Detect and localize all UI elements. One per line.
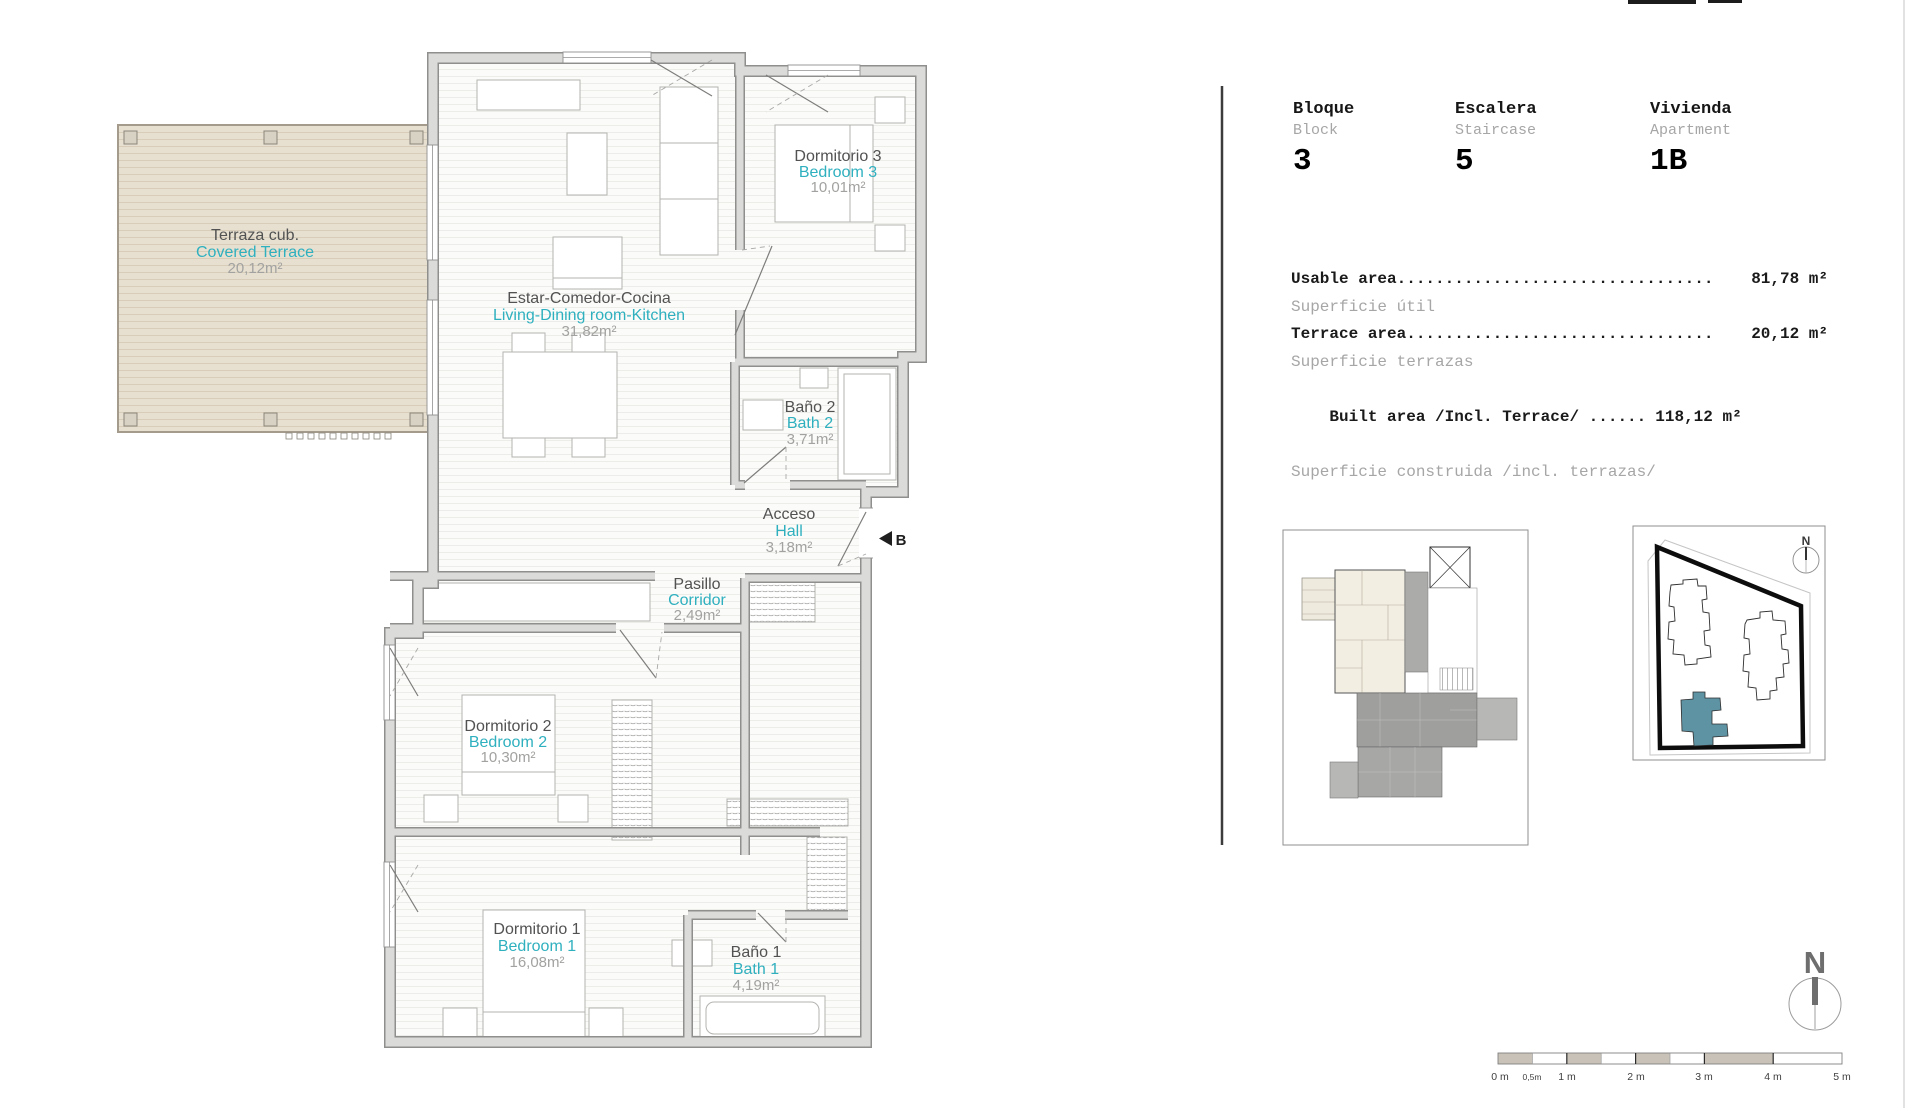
usable-area-label: Usable area.............................…: [1291, 266, 1713, 294]
room-name-es: Dormitorio 2: [464, 718, 551, 735]
room-area: 3,18m²: [766, 539, 813, 556]
terrace-area-label: Terrace area............................…: [1291, 321, 1713, 349]
block-label-es: Bloque: [1293, 100, 1354, 119]
closet-hall: [748, 582, 815, 622]
built-area-value: 118,12 m²: [1655, 408, 1741, 426]
room-name-es: Terraza cub.: [211, 227, 299, 244]
room-label-bath1: Baño 1 Bath 1 4,19m²: [731, 944, 782, 994]
scale-label-0: 0 m: [1491, 1071, 1509, 1083]
built-area-row: Built area /Incl. Terrace/ ......118,12 …: [1291, 376, 1828, 459]
scale-label-1: 1 m: [1558, 1071, 1576, 1083]
scale-label-3: 3 m: [1695, 1071, 1713, 1083]
room-area: 4,19m²: [733, 977, 780, 994]
scale-label-4: 4 m: [1764, 1071, 1782, 1083]
kitchen-island: [567, 133, 607, 195]
key-floor-map: [1283, 530, 1528, 845]
scale-label-05: 0,5m: [1523, 1072, 1542, 1082]
key-elevator: [1430, 547, 1470, 588]
apartment-value: 1B: [1650, 144, 1732, 179]
staircase-info: Escalera Staircase 5: [1455, 100, 1537, 179]
room-area: 31,82m²: [561, 323, 616, 340]
room-name-es: Baño 1: [731, 944, 782, 961]
room-name-en: Bedroom 1: [498, 938, 576, 955]
site-building-1: [1668, 579, 1711, 665]
armchair: [553, 237, 622, 289]
scale-label-5: 5 m: [1833, 1071, 1851, 1083]
room-area: 16,08m²: [509, 954, 564, 971]
entrance-opening: [859, 508, 873, 558]
site-north-letter: N: [1802, 534, 1811, 548]
key-neighbor-terrace-1: [1477, 698, 1517, 740]
usable-area-value: 81,78 m²: [1751, 266, 1828, 294]
usable-area-label-es: Superficie útil: [1291, 294, 1828, 322]
room-name-es: Pasillo: [673, 576, 720, 593]
terrace-area-label-es: Superficie terrazas: [1291, 349, 1828, 377]
sofa: [660, 87, 718, 255]
terrace-area-value: 20,12 m²: [1751, 321, 1828, 349]
compass-icon: N: [1789, 945, 1841, 1030]
block-value: 3: [1293, 144, 1354, 179]
key-subject-apartment: [1335, 570, 1405, 693]
room-label-corridor: Pasillo Corridor 2,49m²: [668, 576, 726, 624]
site-plan-map: N: [1633, 526, 1825, 760]
area-summary: Usable area.............................…: [1291, 266, 1828, 486]
scale-label-2: 2 m: [1627, 1071, 1645, 1083]
key-core-strip: [1405, 572, 1428, 672]
logo-remnant: [1628, 0, 1742, 4]
staircase-label-en: Staircase: [1455, 122, 1537, 139]
terrace-drain-ticks: [286, 433, 391, 439]
key-neighbor-terrace-2: [1330, 762, 1358, 798]
wardrobe-bedroom2: [612, 700, 652, 840]
entrance-letter: B: [896, 532, 907, 549]
staircase-label-es: Escalera: [1455, 100, 1537, 119]
usable-area-row: Usable area.............................…: [1291, 266, 1828, 294]
apartment-info: Vivienda Apartment 1B: [1650, 100, 1732, 179]
room-name-en: Bath 2: [787, 415, 833, 432]
room-name-es: Dormitorio 1: [493, 921, 580, 938]
room-area: 10,01m²: [810, 179, 865, 196]
terrace-deck: [118, 125, 438, 439]
apartment-label-es: Vivienda: [1650, 100, 1732, 119]
block-label-en: Block: [1293, 122, 1354, 139]
room-name-es: Acceso: [763, 506, 816, 523]
drawing-canvas: Terraza cub. Covered Terrace 20,12m² Est…: [0, 0, 1919, 1108]
floorplan-sheet: Terraza cub. Covered Terrace 20,12m² Est…: [0, 0, 1919, 1108]
key-stairs: [1440, 668, 1473, 690]
room-label-bath2: Baño 2 Bath 2 3,71m²: [785, 399, 836, 448]
room-name-en: Covered Terrace: [196, 244, 314, 261]
kitchen-counter: [477, 80, 580, 110]
staircase-value: 5: [1455, 144, 1537, 179]
scale-bar: 0 m 0,5m 1 m 2 m 3 m 4 m 5 m: [1491, 1053, 1851, 1083]
room-name-es: Dormitorio 3: [794, 148, 881, 165]
floor-plan: Terraza cub. Covered Terrace 20,12m² Est…: [118, 52, 921, 1042]
built-area-label-es: Superficie construida /incl. terrazas/: [1291, 459, 1828, 487]
room-name-es: Baño 2: [785, 399, 836, 416]
room-name-en: Living-Dining room-Kitchen: [493, 307, 685, 324]
apartment-label-en: Apartment: [1650, 122, 1732, 139]
built-area-label: Built area /Incl. Terrace/ ......: [1329, 408, 1646, 426]
room-name-en: Hall: [775, 523, 803, 540]
room-area: 2,49m²: [674, 607, 721, 624]
terrace-area-row: Terrace area............................…: [1291, 321, 1828, 349]
entrance-arrow-icon: [879, 531, 892, 546]
entrance-marker: B: [879, 531, 907, 549]
room-area: 10,30m²: [480, 749, 535, 766]
corridor-sideboard: [420, 583, 650, 621]
dining-table: [503, 333, 617, 457]
room-name-es: Estar-Comedor-Cocina: [507, 290, 671, 307]
room-area: 20,12m²: [227, 260, 282, 277]
room-name-en: Bath 1: [733, 961, 779, 978]
room-area: 3,71m²: [787, 431, 834, 448]
wardrobe-bedroom1: [807, 837, 847, 917]
block-info: Bloque Block 3: [1293, 100, 1354, 179]
compass-north-letter: N: [1804, 945, 1826, 980]
